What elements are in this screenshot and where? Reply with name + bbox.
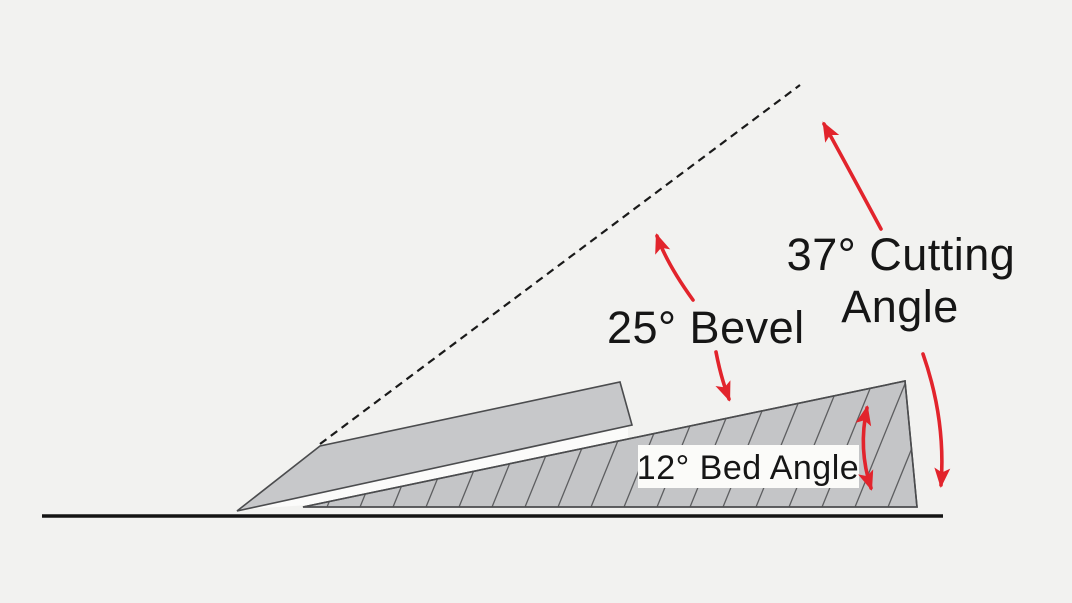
bevel-label: 25° Bevel [607,302,805,353]
cutting-angle-label-line1: 37° Cutting [787,229,1016,280]
angle-diagram: 12° Bed Angle 37° Cutting Angle 25° Beve… [0,0,1072,603]
cutting-angle-label-line2: Angle [841,281,959,332]
angle-diagram-canvas: 12° Bed Angle 37° Cutting Angle 25° Beve… [0,0,1072,603]
bed-angle-label: 12° Bed Angle [637,449,859,487]
